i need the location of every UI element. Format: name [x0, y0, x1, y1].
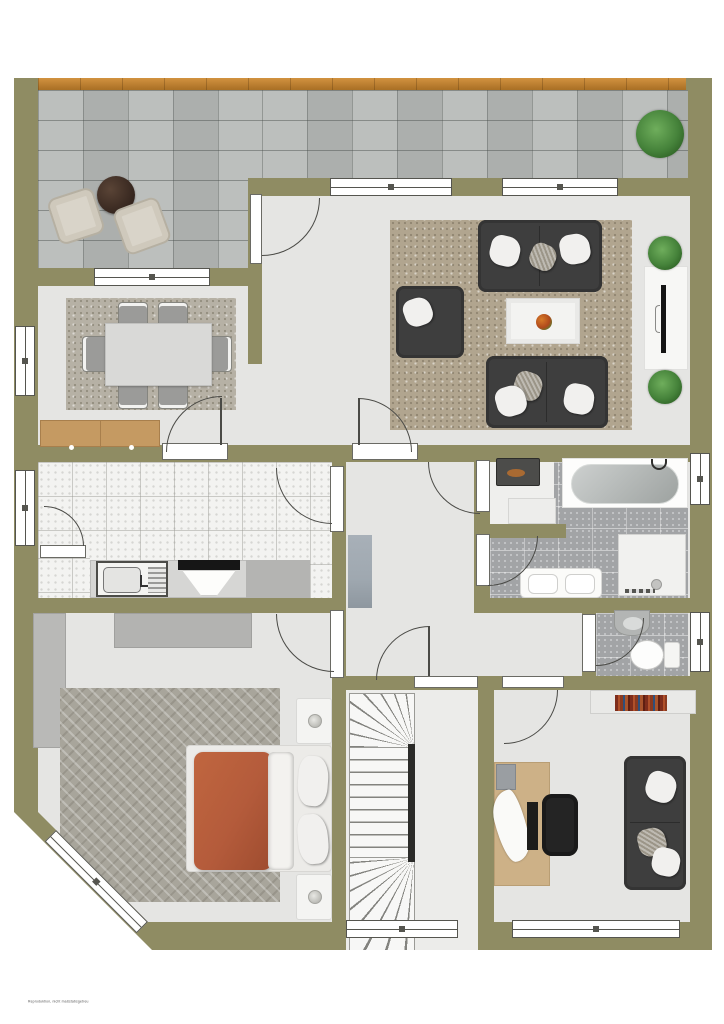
- pantry-door: [40, 545, 86, 558]
- dining-table: [105, 323, 212, 386]
- bathroom-window: [690, 453, 710, 505]
- shower-controls: [625, 589, 655, 593]
- living-window: [330, 178, 452, 196]
- living-sofa-bottom: [486, 356, 608, 428]
- stair-window: [346, 920, 458, 938]
- kitchen-sink-unit: [96, 561, 168, 597]
- wc-window: [690, 612, 710, 672]
- pantry-floor: [38, 558, 90, 598]
- bookshelf-books: [615, 695, 667, 711]
- sofa-pillow-patterned: [526, 240, 560, 274]
- bath-vanity: [520, 568, 602, 598]
- storage-box: [508, 498, 556, 524]
- fruit-bowl-icon: [536, 314, 552, 330]
- dining-side-window: [15, 326, 35, 396]
- tv-board: [644, 266, 688, 370]
- terrace-door: [250, 194, 262, 264]
- bedroom-wardrobe-top: [114, 613, 252, 648]
- sofa-pillow: [558, 232, 593, 267]
- terrace-deck-edge: [38, 78, 686, 90]
- sofa-pillow: [487, 233, 523, 269]
- kitchen-counter-dark-segment: [246, 560, 310, 598]
- wall-stair-office-vertical: [478, 690, 494, 1000]
- nightstand: [296, 874, 332, 920]
- living-window: [502, 178, 618, 196]
- kitchen-window: [15, 470, 35, 546]
- nightstand-lamp-icon: [308, 890, 322, 904]
- sideboard-knob-icon: [129, 445, 134, 450]
- bed-blanket: [268, 752, 294, 870]
- bathtub: [562, 458, 688, 508]
- shower: [618, 534, 686, 596]
- stair-treads-straight: [350, 748, 414, 858]
- living-sofa-top: [478, 220, 602, 292]
- terrace-plant-icon: [636, 110, 684, 158]
- dining-chair: [118, 383, 148, 409]
- kitchen-cooktop: [178, 560, 240, 570]
- coffee-table: [506, 298, 580, 344]
- desk-tray: [496, 764, 516, 790]
- sideboard-knob-icon: [69, 445, 74, 450]
- wall-kitchen-bedroom: [38, 598, 346, 613]
- stair-treads-winder-top: [350, 694, 414, 748]
- tv-icon: [661, 285, 666, 353]
- sofa-divider: [546, 362, 547, 422]
- sofa-divider: [630, 822, 680, 823]
- stove-window: [507, 469, 525, 477]
- staircase: [346, 690, 492, 1000]
- kitchen-faucet-icon: [140, 575, 148, 587]
- wall-bath-wc: [490, 598, 690, 613]
- floor-plan-page: Reproduktion, nicht maßstabsgetreu: [0, 0, 724, 1024]
- office-sofa: [624, 756, 686, 890]
- sofa-pillow: [642, 768, 680, 806]
- office-window: [512, 920, 680, 938]
- watermark-text: Reproduktion, nicht maßstabsgetreu: [28, 999, 89, 1003]
- nightstand: [296, 698, 332, 744]
- toilet-cistern: [664, 642, 680, 668]
- living-armchair: [396, 286, 464, 358]
- office-chair: [542, 794, 578, 856]
- storage-stove: [496, 458, 540, 486]
- kitchen-drainer: [148, 567, 166, 593]
- sofa-pillow: [562, 382, 597, 417]
- office-bookshelf: [590, 690, 696, 714]
- sideboard: [40, 420, 160, 447]
- tv-stand-icon: [655, 305, 660, 333]
- office-door: [502, 676, 564, 688]
- living-plant-icon: [648, 370, 682, 404]
- desk-monitor-icon: [527, 802, 538, 850]
- bed-duvet: [194, 752, 272, 870]
- hallway-doormat: [348, 535, 372, 608]
- bathtub-basin: [571, 464, 679, 504]
- nightstand-lamp-icon: [308, 714, 322, 728]
- stair-handrail: [408, 744, 415, 862]
- vanity-sink: [528, 574, 558, 594]
- dining-terrace-window: [94, 268, 210, 286]
- vanity-sink: [565, 574, 595, 594]
- wc-door: [582, 614, 596, 672]
- dining-chair: [158, 383, 188, 409]
- terrace-floor-right: [262, 90, 688, 178]
- sideboard-divider: [100, 421, 101, 448]
- floor-plan: [14, 78, 712, 950]
- living-plant-icon: [648, 236, 682, 270]
- kitchen-sink-basin: [103, 567, 141, 593]
- sofa-pillow: [649, 845, 682, 878]
- armchair-pillow: [400, 294, 436, 330]
- kitchen-door: [330, 466, 344, 532]
